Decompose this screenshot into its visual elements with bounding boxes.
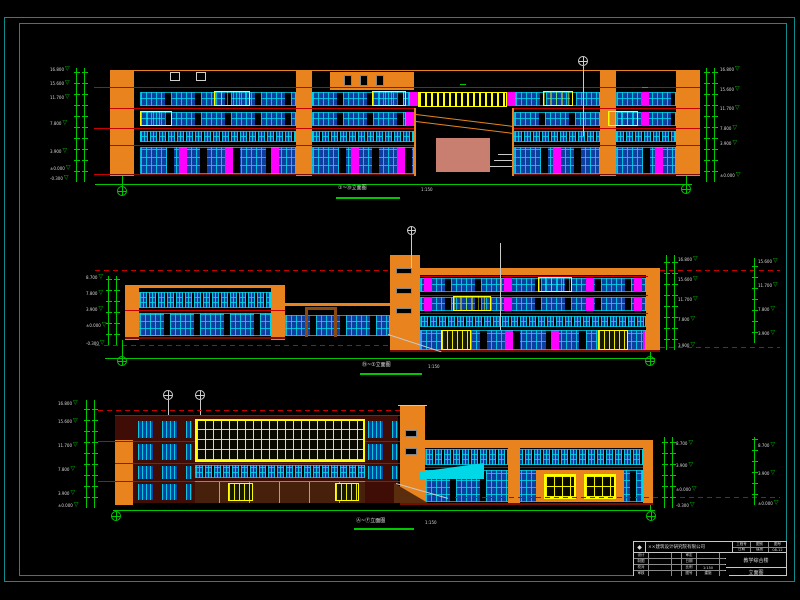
extension-line bbox=[455, 497, 780, 498]
callout-leader bbox=[411, 235, 412, 268]
roof-mark bbox=[642, 87, 648, 88]
auditorium-wall bbox=[436, 138, 490, 172]
title-block-cell: 工程号 bbox=[733, 542, 750, 547]
title-block-cell: 设计 bbox=[634, 553, 648, 558]
tower-window bbox=[405, 430, 417, 437]
roof-equipment bbox=[170, 72, 180, 81]
pilaster bbox=[676, 70, 700, 176]
parapet-opening bbox=[360, 75, 368, 86]
extension-line bbox=[95, 345, 390, 346]
dimension-line bbox=[670, 437, 676, 508]
base-line bbox=[390, 350, 660, 352]
window-pair-row bbox=[138, 466, 192, 479]
floor-line bbox=[420, 276, 648, 277]
accent-panel bbox=[406, 112, 414, 126]
accent-panel bbox=[641, 112, 649, 126]
tower-cap bbox=[398, 405, 427, 406]
accent-panel bbox=[507, 92, 515, 106]
tower-window bbox=[396, 268, 412, 274]
title-block-header: ◆ ××建筑设计研究院有限公司 工程号图别图号日期建施08-12 bbox=[634, 542, 786, 553]
dimension-line bbox=[672, 255, 678, 350]
ribbon-window-band bbox=[140, 131, 296, 142]
highlighted-window bbox=[214, 91, 250, 106]
title-block-cell: 日期 bbox=[733, 548, 750, 553]
title-block-cell bbox=[672, 559, 681, 564]
title-block-cell bbox=[697, 553, 719, 558]
axis-stub bbox=[122, 176, 123, 186]
stair-step bbox=[490, 166, 512, 167]
title-block-cell bbox=[672, 565, 681, 570]
parapet-opening bbox=[376, 75, 384, 86]
accent-panel bbox=[641, 92, 649, 106]
highlighted-door bbox=[441, 330, 471, 350]
extension-line bbox=[95, 270, 390, 271]
section-line bbox=[500, 243, 501, 330]
extension-line bbox=[98, 410, 420, 411]
pilaster bbox=[115, 440, 133, 505]
label-underline bbox=[336, 197, 400, 199]
louver-strip bbox=[418, 92, 507, 107]
ribbon-window-band bbox=[195, 465, 365, 478]
title-block-cell bbox=[649, 559, 671, 564]
floor-line bbox=[110, 87, 700, 88]
base-line bbox=[110, 174, 700, 175]
tower-window bbox=[396, 288, 412, 294]
drawing-title: 立面图 bbox=[726, 567, 786, 576]
window-band bbox=[420, 278, 646, 292]
label-underline bbox=[360, 373, 422, 375]
title-block-cell bbox=[649, 553, 671, 558]
ground-line bbox=[105, 358, 655, 359]
title-block-cell: 比例 bbox=[682, 565, 696, 570]
grid-bubble bbox=[117, 356, 127, 366]
company-logo: ◆ bbox=[634, 542, 646, 552]
callout-leader bbox=[583, 66, 584, 136]
window-band bbox=[312, 112, 406, 126]
level-stub bbox=[94, 128, 110, 129]
window-pair-row bbox=[138, 444, 192, 460]
recess-edge bbox=[512, 108, 514, 176]
dimension-line bbox=[74, 68, 80, 182]
highlighted-window bbox=[453, 296, 491, 311]
title-block-cell: 图别 bbox=[751, 542, 768, 547]
base-line bbox=[125, 337, 285, 339]
title-block-cell bbox=[649, 565, 671, 570]
title-block: ◆ ××建筑设计研究院有限公司 工程号图别图号日期建施08-12 设计审定制图日… bbox=[633, 541, 787, 576]
title-block-cell: 图号 bbox=[682, 571, 696, 576]
accent-panel bbox=[586, 297, 594, 311]
highlighted-window bbox=[543, 91, 573, 106]
grid-bubble bbox=[645, 356, 655, 366]
title-block-cell: 审核 bbox=[634, 571, 648, 576]
accent-panel bbox=[424, 297, 432, 311]
dimension-line bbox=[82, 68, 88, 182]
grid-bubble bbox=[117, 186, 127, 196]
parapet-band bbox=[420, 268, 648, 275]
title-block-cell bbox=[649, 571, 671, 576]
dimension-line bbox=[752, 258, 758, 343]
floor-line bbox=[115, 463, 400, 464]
roof-mark bbox=[460, 84, 466, 85]
recess-edge bbox=[414, 108, 416, 176]
grid-bubble bbox=[646, 511, 656, 521]
level-stub bbox=[94, 87, 110, 88]
title-block-cell: 图号 bbox=[769, 542, 786, 547]
title-block-cell: 建施 bbox=[697, 571, 719, 576]
tower-window bbox=[405, 448, 417, 455]
accent-panel bbox=[504, 278, 512, 292]
ground-line bbox=[113, 510, 655, 511]
ribbon-window-band bbox=[139, 292, 271, 308]
title-block-info-grid: 工程号图别图号日期建施08-12 bbox=[732, 542, 786, 552]
dimension-line bbox=[664, 255, 670, 350]
company-name: ××建筑设计研究院有限公司 bbox=[646, 542, 732, 552]
parapet-opening bbox=[344, 75, 352, 86]
dimension-line bbox=[712, 68, 718, 182]
title-block-cell bbox=[672, 553, 681, 558]
ribbon-window-band bbox=[616, 131, 676, 142]
title-block-cell: 建施 bbox=[751, 548, 768, 553]
drawing-label: ①~⑲立面图 bbox=[338, 186, 367, 191]
pilaster bbox=[271, 285, 285, 340]
extension-line bbox=[660, 270, 780, 271]
base-line bbox=[400, 503, 653, 505]
parapet-band bbox=[285, 303, 390, 306]
entry-grid-window bbox=[584, 474, 616, 499]
level-stub bbox=[98, 481, 115, 482]
drawing-scale: 1:150 bbox=[425, 521, 437, 525]
pilaster bbox=[110, 70, 134, 176]
window-pair-row bbox=[138, 484, 192, 500]
ground-floor-band bbox=[312, 147, 414, 174]
grid-bubble bbox=[681, 184, 691, 194]
window-band bbox=[139, 313, 271, 336]
accent-panel bbox=[634, 297, 642, 311]
masonry-wall bbox=[115, 415, 133, 440]
ground-floor-band bbox=[616, 147, 676, 174]
axis-stub bbox=[122, 340, 123, 356]
dimension-line bbox=[84, 400, 90, 508]
dimension-line bbox=[114, 276, 120, 345]
floor-line bbox=[115, 415, 400, 416]
window-pair-row bbox=[368, 444, 398, 460]
axis-stub bbox=[686, 176, 687, 184]
pilaster bbox=[296, 70, 312, 176]
accent-panel bbox=[424, 278, 432, 292]
highlighted-window bbox=[538, 277, 572, 292]
title-block-cell: 1:150 bbox=[697, 565, 719, 570]
drawing-scale: 1:150 bbox=[421, 188, 433, 192]
highlighted-window bbox=[140, 111, 172, 126]
title-block-cell bbox=[697, 559, 719, 564]
accent-panel bbox=[634, 278, 642, 292]
callout-bubble bbox=[407, 226, 416, 235]
title-block-cell: 制图 bbox=[634, 559, 648, 564]
ground-floor-band bbox=[514, 147, 600, 174]
stair-step bbox=[494, 160, 512, 161]
ribbon-window-band bbox=[312, 131, 414, 142]
ground-floor-band bbox=[140, 147, 296, 174]
drawing-label: ⑲~①立面图 bbox=[362, 363, 391, 368]
ribbon-window-band bbox=[514, 131, 600, 142]
pilaster bbox=[643, 440, 653, 505]
curtain-wall-grid bbox=[195, 419, 365, 462]
dimension-line bbox=[662, 437, 668, 508]
title-block-cell: 审定 bbox=[682, 553, 696, 558]
roof-line bbox=[110, 70, 700, 71]
grid-bubble bbox=[111, 511, 121, 521]
window-band bbox=[285, 315, 390, 336]
entry-grid-window bbox=[544, 474, 576, 499]
floor-line bbox=[420, 313, 648, 314]
callout-bubble bbox=[578, 56, 588, 66]
parapet-band bbox=[425, 440, 653, 448]
window-pair-row bbox=[368, 466, 398, 479]
title-block-cell: 校对 bbox=[634, 565, 648, 570]
parapet-band bbox=[125, 285, 285, 288]
window-band bbox=[514, 112, 600, 126]
level-stub bbox=[98, 441, 115, 442]
dimension-line bbox=[704, 68, 710, 182]
callout-bubble bbox=[195, 390, 205, 400]
accent-panel bbox=[586, 278, 594, 292]
pilaster bbox=[508, 440, 520, 505]
floor-line bbox=[110, 128, 700, 129]
highlighted-door bbox=[598, 330, 628, 350]
extension-line bbox=[660, 347, 780, 348]
title-block-grid: 设计审定制图日期校对比例1:150审核图号建施 bbox=[634, 553, 726, 576]
stair-step bbox=[498, 154, 512, 155]
title-block-cell bbox=[672, 571, 681, 576]
level-stub bbox=[94, 174, 110, 175]
callout-bubble bbox=[163, 390, 173, 400]
ribbon-window-band bbox=[425, 449, 643, 465]
title-block-cell: 08-12 bbox=[769, 548, 786, 553]
title-block-cell: 日期 bbox=[682, 559, 696, 564]
dimension-line bbox=[752, 437, 758, 505]
label-underline bbox=[354, 528, 414, 530]
highlighted-door bbox=[228, 483, 253, 501]
accent-panel bbox=[504, 297, 512, 311]
drawing-label: Ⓐ~Ⓕ立面图 bbox=[356, 519, 385, 524]
ground-line bbox=[95, 184, 692, 185]
floor-line bbox=[110, 108, 700, 109]
highlighted-door bbox=[335, 483, 359, 501]
roof-equipment bbox=[196, 72, 206, 81]
drawing-scale: 1:150 bbox=[428, 365, 440, 369]
drawing-sheet: 16.800▽15.600▽11.700▽7.800▽3.900▽±0.000▽… bbox=[0, 0, 800, 600]
tower-window bbox=[396, 308, 412, 314]
floor-line bbox=[125, 310, 285, 311]
pilaster bbox=[125, 285, 139, 340]
highlighted-window bbox=[372, 91, 406, 106]
pilaster bbox=[646, 268, 660, 350]
ribbon-window-band bbox=[420, 316, 646, 327]
gate-frame bbox=[305, 307, 337, 337]
window-pair-row bbox=[368, 421, 398, 438]
accent-panel bbox=[410, 92, 418, 106]
dimension-line bbox=[106, 276, 112, 345]
floor-line bbox=[110, 145, 700, 146]
window-pair-row bbox=[138, 421, 192, 438]
project-name: 教学综合楼 bbox=[726, 553, 786, 567]
dimension-line bbox=[92, 400, 98, 508]
highlighted-window bbox=[608, 111, 638, 126]
